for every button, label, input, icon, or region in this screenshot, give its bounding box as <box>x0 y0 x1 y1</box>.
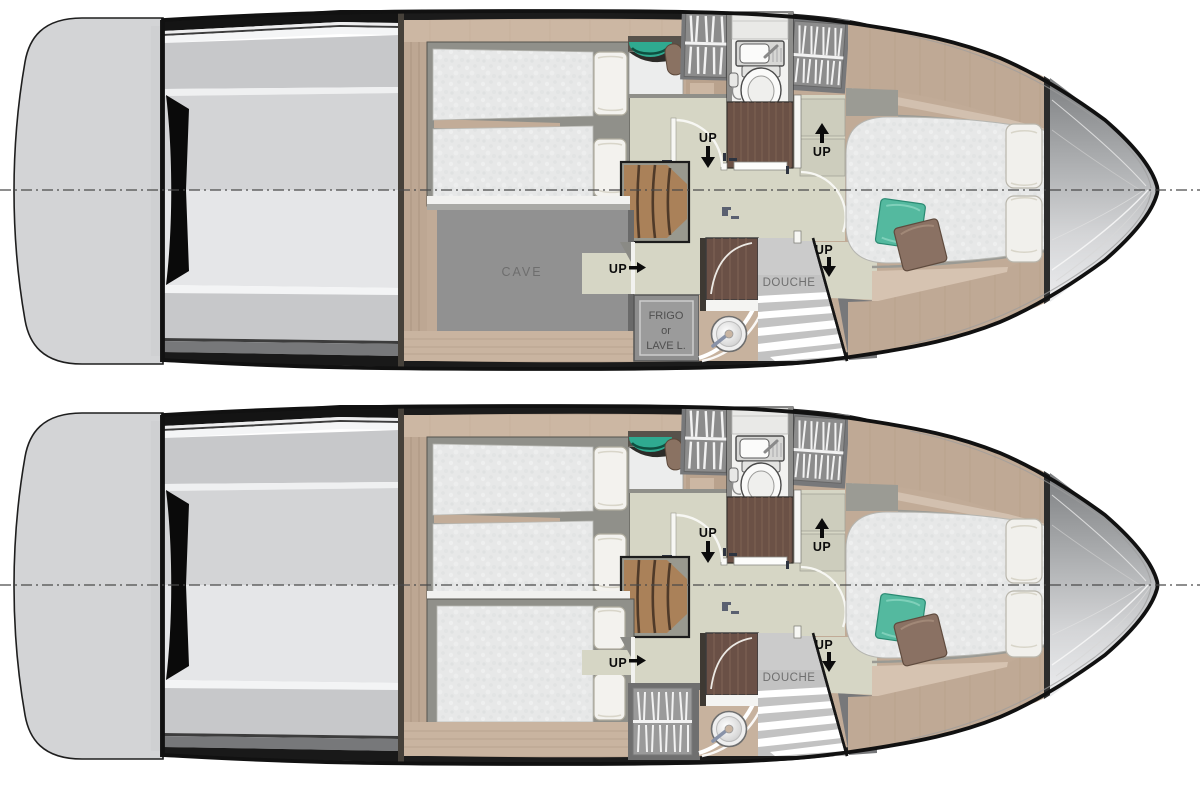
svg-text:UP: UP <box>813 145 831 159</box>
svg-text:CAVE: CAVE <box>501 265 542 279</box>
svg-text:UP: UP <box>699 131 717 145</box>
svg-text:or: or <box>661 325 671 337</box>
svg-text:UP: UP <box>815 638 833 652</box>
svg-text:UP: UP <box>699 526 717 540</box>
svg-text:UP: UP <box>815 243 833 257</box>
svg-text:UP: UP <box>609 262 627 276</box>
svg-text:DOUCHE: DOUCHE <box>763 277 816 289</box>
svg-text:FRIGO: FRIGO <box>649 310 684 322</box>
svg-text:LAVE L.: LAVE L. <box>646 340 686 352</box>
svg-text:UP: UP <box>609 656 627 670</box>
svg-text:DOUCHE: DOUCHE <box>763 672 816 684</box>
svg-text:UP: UP <box>813 540 831 554</box>
